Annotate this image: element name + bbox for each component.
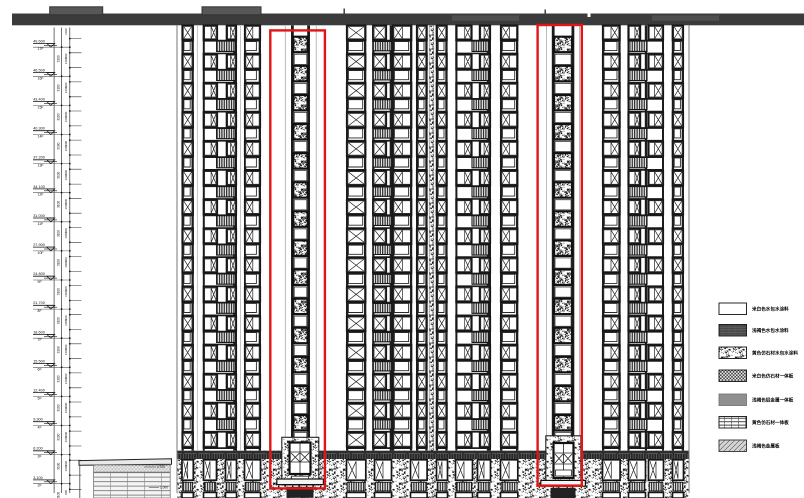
svg-text:21.700: 21.700 — [33, 301, 45, 305]
svg-text:1600: 1600 — [64, 28, 68, 35]
svg-text:43.400: 43.400 — [33, 98, 45, 102]
svg-text:1600: 1600 — [64, 115, 68, 122]
svg-text:1600: 1600 — [64, 348, 68, 355]
svg-text:24.800: 24.800 — [33, 272, 45, 276]
svg-text:米白色仿石材一体板: 米白色仿石材一体板 — [752, 373, 794, 380]
svg-text:3100: 3100 — [56, 375, 60, 382]
svg-text:黄色仿石材水包水涂料: 黄色仿石材水包水涂料 — [752, 350, 798, 357]
svg-text:3100: 3100 — [56, 462, 60, 469]
svg-text:浅褐色金属板: 浅褐色金属板 — [752, 443, 780, 450]
svg-text:3100: 3100 — [56, 142, 60, 149]
svg-text:15F: 15F — [38, 105, 44, 109]
svg-text:浅褐色水包水涂料: 浅褐色水包水涂料 — [752, 327, 789, 334]
svg-text:1.000: 1.000 — [160, 486, 168, 490]
svg-text:6.200: 6.200 — [33, 447, 43, 451]
svg-text:3F: 3F — [38, 455, 42, 459]
svg-text:1600: 1600 — [64, 435, 68, 442]
svg-text:1600: 1600 — [64, 232, 68, 239]
svg-text:3100: 3100 — [56, 201, 60, 208]
svg-text:27.900: 27.900 — [33, 243, 45, 247]
svg-text:2F: 2F — [38, 484, 42, 488]
svg-text:4.700: 4.700 — [157, 465, 165, 469]
svg-text:6F: 6F — [38, 367, 42, 371]
svg-text:1600: 1600 — [64, 174, 68, 181]
svg-text:17F: 17F — [38, 47, 44, 51]
svg-text:3100: 3100 — [56, 492, 60, 498]
svg-text:8F: 8F — [38, 309, 42, 313]
svg-text:3100: 3100 — [56, 288, 60, 295]
svg-text:1600: 1600 — [64, 406, 68, 413]
svg-text:3100: 3100 — [56, 317, 60, 324]
svg-text:3100: 3100 — [56, 259, 60, 266]
svg-text:1600: 1600 — [64, 203, 68, 210]
svg-text:1600: 1600 — [64, 290, 68, 297]
svg-text:3100: 3100 — [56, 171, 60, 178]
svg-text:37.200: 37.200 — [33, 156, 45, 160]
svg-text:3100: 3100 — [56, 346, 60, 353]
svg-text:1600: 1600 — [64, 144, 68, 151]
svg-text:3100: 3100 — [56, 55, 60, 62]
svg-text:12F: 12F — [38, 193, 44, 197]
svg-text:9F: 9F — [38, 280, 42, 284]
svg-text:10F: 10F — [38, 251, 44, 255]
svg-text:浅褐色铝金属一体板: 浅褐色铝金属一体板 — [752, 397, 794, 404]
svg-text:14F: 14F — [38, 135, 44, 139]
svg-text:3100: 3100 — [56, 84, 60, 91]
svg-text:900: 900 — [64, 490, 68, 495]
svg-text:12.400: 12.400 — [33, 389, 45, 393]
svg-text:米白色水包水涂料: 米白色水包水涂料 — [752, 306, 789, 313]
svg-text:1600: 1600 — [64, 319, 68, 326]
svg-text:3100: 3100 — [56, 404, 60, 411]
svg-text:1600: 1600 — [64, 261, 68, 268]
svg-text:4F: 4F — [38, 426, 42, 430]
svg-text:11F: 11F — [38, 222, 44, 226]
svg-text:5F: 5F — [38, 396, 42, 400]
svg-text:3.100: 3.100 — [33, 476, 43, 480]
svg-text:黄色仿石材一体板: 黄色仿石材一体板 — [752, 419, 789, 426]
svg-text:34.100: 34.100 — [33, 185, 45, 189]
svg-text:18.600: 18.600 — [33, 330, 45, 334]
svg-text:31.000: 31.000 — [33, 214, 45, 218]
svg-text:15.500: 15.500 — [33, 359, 45, 363]
svg-text:16F: 16F — [38, 76, 44, 80]
svg-text:40.300: 40.300 — [33, 127, 45, 131]
svg-text:1600: 1600 — [64, 465, 68, 472]
svg-text:3100: 3100 — [56, 433, 60, 440]
svg-text:9.300: 9.300 — [33, 418, 43, 422]
svg-text:46.500: 46.500 — [33, 68, 45, 72]
svg-text:13F: 13F — [38, 164, 44, 168]
svg-text:1600: 1600 — [64, 57, 68, 64]
svg-text:1600: 1600 — [64, 377, 68, 384]
svg-text:3100: 3100 — [56, 113, 60, 120]
svg-text:1600: 1600 — [64, 86, 68, 93]
svg-text:7F: 7F — [38, 338, 42, 342]
svg-text:49.600: 49.600 — [33, 39, 45, 43]
svg-text:3100: 3100 — [56, 230, 60, 237]
